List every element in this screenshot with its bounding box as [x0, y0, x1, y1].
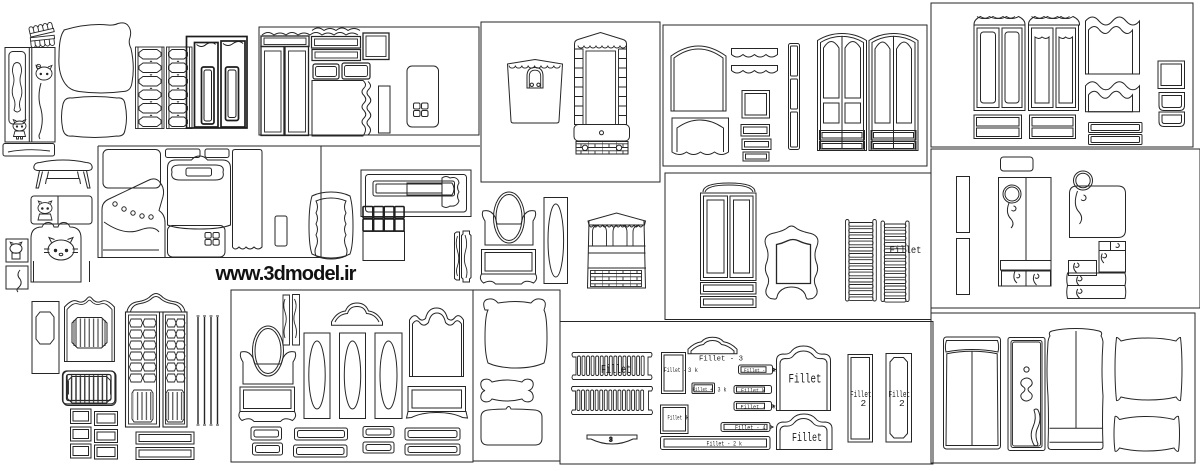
svg-text:3 k: 3 k [688, 367, 698, 374]
svg-text:Fillet: Fillet [890, 245, 922, 257]
svg-text:Fillet: Fillet [601, 363, 631, 377]
svg-text:Fillet - 4: Fillet - 4 [735, 424, 766, 431]
svg-text:k: k [686, 415, 690, 422]
svg-text:Fillet: Fillet [789, 373, 822, 387]
svg-text:Fillet +: Fillet + [693, 386, 713, 393]
svg-text:3 k: 3 k [718, 387, 727, 394]
svg-text:2: 2 [861, 398, 867, 409]
svg-text:Fillet -: Fillet - [744, 367, 765, 374]
svg-text:Fillet -: Fillet - [664, 367, 686, 374]
svg-text:Fillet -: Fillet - [741, 404, 766, 411]
svg-text:Fillet k: Fillet k [741, 387, 766, 394]
svg-text:Fillet - 3: Fillet - 3 [699, 356, 743, 364]
svg-text:3: 3 [609, 437, 613, 444]
svg-text:2: 2 [899, 398, 905, 409]
svg-text:Fillet - 2 k: Fillet - 2 k [707, 441, 743, 448]
svg-text:Fillet: Fillet [668, 415, 683, 422]
svg-text:Fillet: Fillet [792, 432, 822, 445]
svg-text:www.3dmodel.ir: www.3dmodel.ir [215, 263, 357, 285]
